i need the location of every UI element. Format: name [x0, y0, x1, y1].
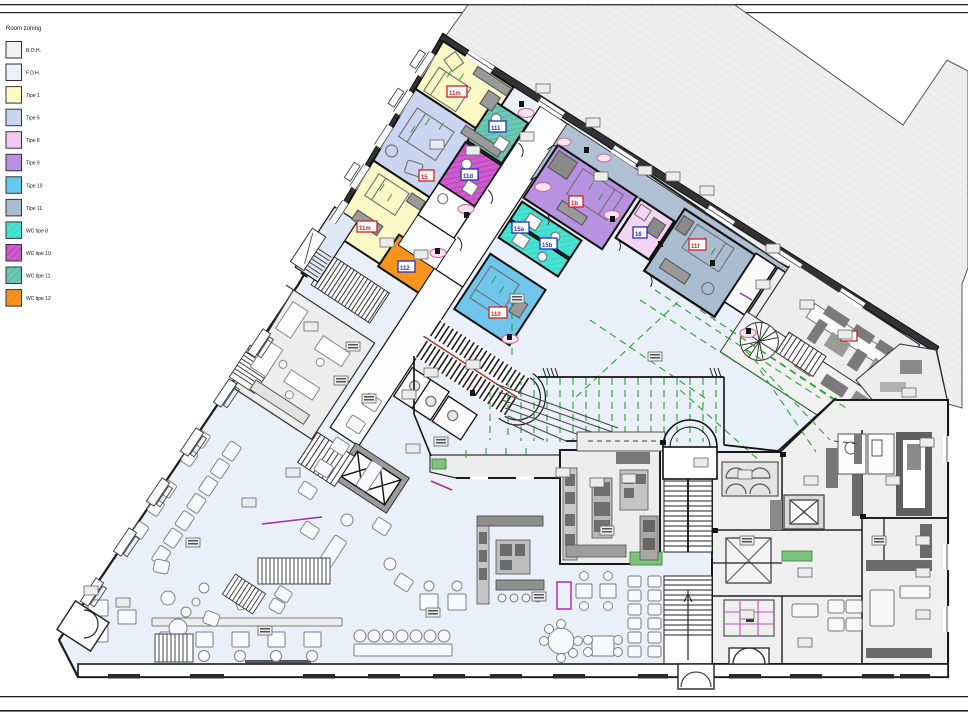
svg-text:Tipe 9: Tipe 9 [26, 161, 40, 167]
svg-text:1b: 1b [571, 201, 578, 207]
svg-text:15a: 15a [514, 227, 525, 233]
svg-text:WC tipe 11: WC tipe 11 [26, 274, 51, 280]
svg-text:Tipe 10: Tipe 10 [26, 183, 43, 189]
svg-text:WC tipe 8: WC tipe 8 [26, 228, 48, 234]
svg-text:WC tipe 10: WC tipe 10 [26, 251, 51, 257]
svg-text:15: 15 [421, 175, 428, 181]
svg-text:Tipe 1: Tipe 1 [26, 93, 40, 99]
svg-text:11f: 11f [691, 244, 700, 250]
svg-text:Tipe 8: Tipe 8 [26, 138, 40, 144]
svg-text:16: 16 [635, 232, 642, 238]
svg-text:Tipe 5: Tipe 5 [26, 116, 40, 122]
svg-text:110: 110 [491, 312, 501, 318]
svg-text:WC tipe 12: WC tipe 12 [26, 296, 51, 302]
svg-text:B.O.H.: B.O.H. [26, 48, 41, 54]
svg-text:F.O.H.: F.O.H. [26, 71, 40, 77]
svg-text:11m: 11m [359, 226, 371, 232]
svg-text:111: 111 [491, 126, 501, 132]
svg-text:15b: 15b [542, 243, 553, 249]
svg-text:112: 112 [400, 266, 410, 272]
svg-text:11m: 11m [449, 91, 461, 97]
svg-text:11d: 11d [463, 174, 473, 180]
svg-text:Room zoning: Room zoning [6, 26, 41, 32]
svg-text:Tipe 11: Tipe 11 [26, 206, 42, 212]
